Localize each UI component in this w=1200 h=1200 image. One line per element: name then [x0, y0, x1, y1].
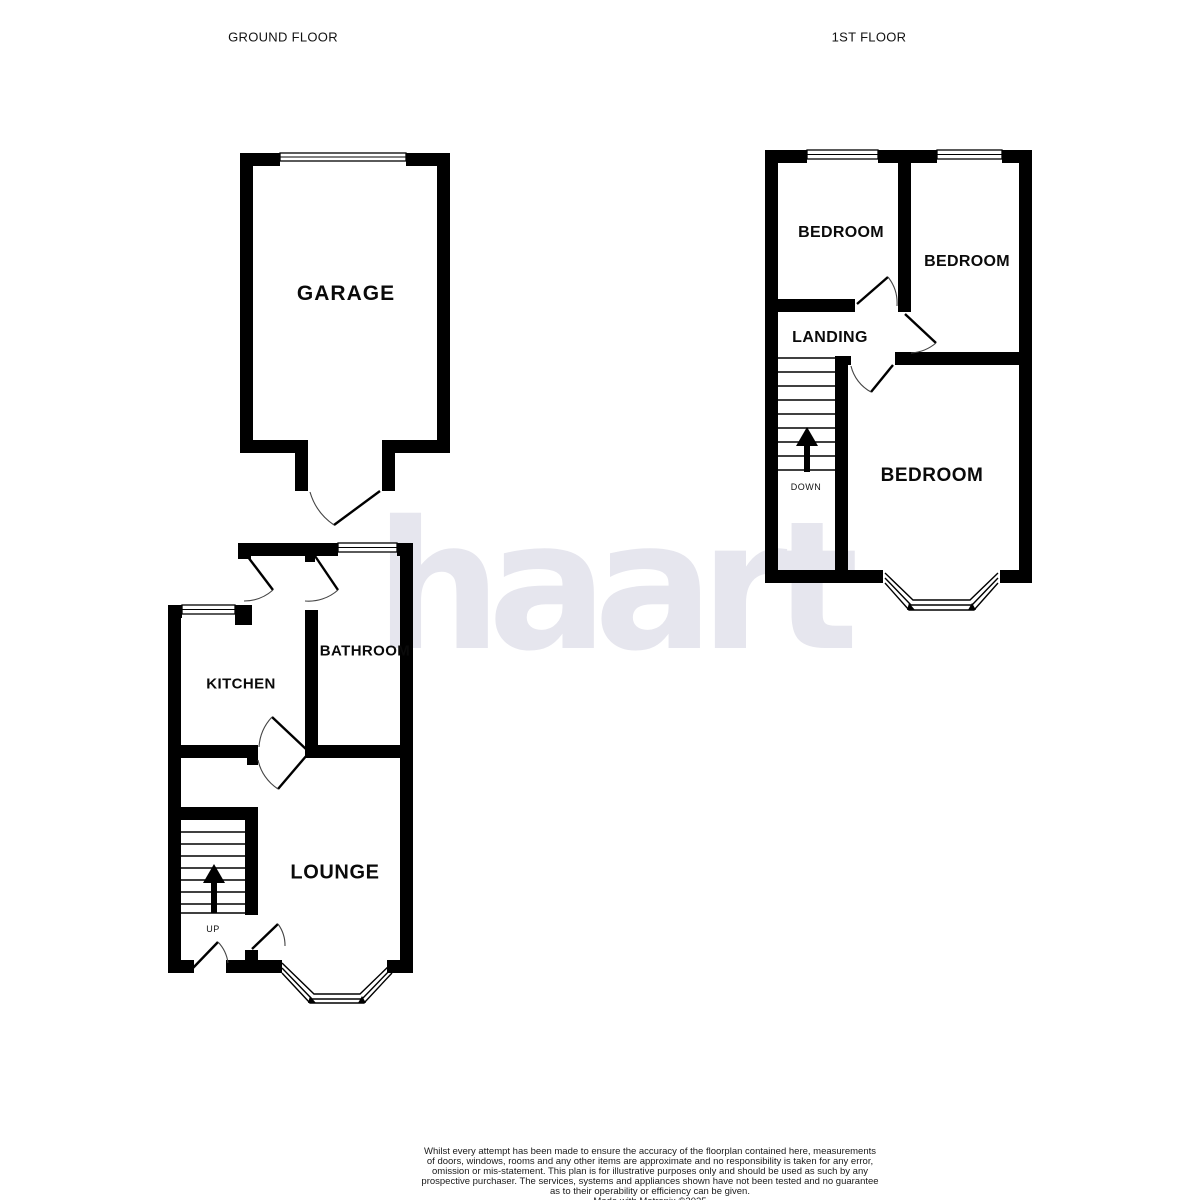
rear-lobby-doors — [244, 556, 338, 601]
bedroom-right-window — [937, 150, 1002, 159]
kitchen-hall-doors — [258, 717, 307, 789]
bedroom-left-window — [807, 150, 878, 159]
floorplan-page: haart GROUND FLOOR 1ST FLOOR — [0, 0, 1200, 1200]
bedroom-left-door — [857, 277, 897, 306]
down-arrow — [796, 427, 818, 472]
lounge-bay-window — [282, 963, 392, 1003]
rear-hall-window — [338, 543, 397, 552]
hall-lounge-door — [252, 924, 285, 949]
ground-floor-title: GROUND FLOOR — [228, 30, 338, 45]
floorplan-drawing — [0, 0, 1200, 1200]
up-arrow — [203, 864, 225, 913]
bedroom-main-label: BEDROOM — [881, 465, 984, 487]
down-label: DOWN — [791, 482, 822, 492]
up-label: UP — [206, 924, 220, 934]
garage-door-window — [280, 153, 406, 161]
bedroom-right-door — [905, 314, 936, 353]
first-floor-title: 1ST FLOOR — [832, 30, 907, 45]
disclaimer: Whilst every attempt has been made to en… — [421, 1147, 878, 1200]
garage-label: GARAGE — [297, 282, 395, 306]
garage-outline — [240, 153, 450, 491]
bedroom-right-label: BEDROOM — [924, 253, 1010, 271]
bedroom-bay-window — [885, 573, 998, 610]
first-floor-walls — [765, 150, 1032, 583]
landing-label: LANDING — [792, 329, 868, 347]
kitchen-label: KITCHEN — [206, 676, 275, 693]
bedroom-left-label: BEDROOM — [798, 224, 884, 242]
garage-entry-door — [310, 491, 380, 525]
bathroom-label: BATHROOM — [320, 643, 410, 660]
bedroom-main-door — [851, 365, 893, 392]
kitchen-window — [182, 605, 235, 614]
front-door — [192, 942, 228, 969]
lounge-label: LOUNGE — [290, 862, 379, 885]
